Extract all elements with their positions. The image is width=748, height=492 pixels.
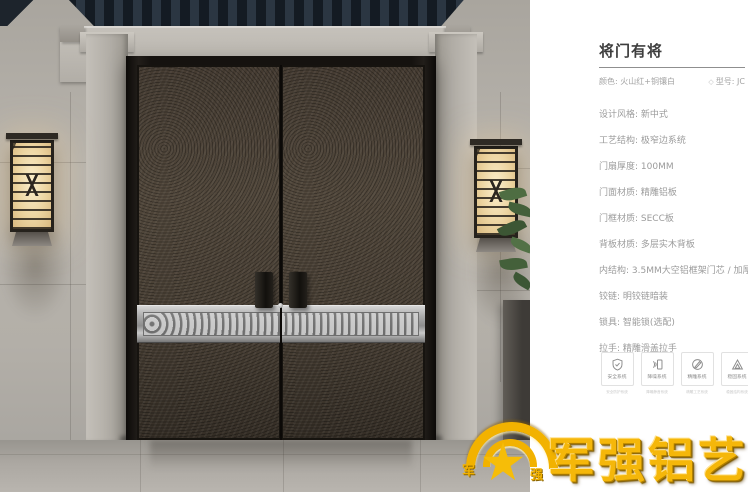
lock-knob xyxy=(278,303,283,308)
emblem-char-right: 强 xyxy=(530,464,543,483)
spec-row-face-material: 门面材质: 精雕铝板 xyxy=(599,185,748,198)
door-scene-render xyxy=(0,0,530,492)
spec-row-frame-material: 门框材质: SECC板 xyxy=(599,211,748,224)
spec-row-back-material: 背板材质: 多层实木背板 xyxy=(599,237,748,250)
feature-box: 稳固系统 xyxy=(721,352,748,386)
feature-icons-row: 安全系统 安全防护系统 降噪系统 降噪静音系统 xyxy=(599,352,748,395)
product-showcase-page: 将门有将 颜色: 火山红+铜镶白 ◇ 型号: JC 设计风格: 新中式 工艺结构… xyxy=(0,0,748,492)
lamp-bracket xyxy=(12,232,52,246)
feature-safety: 安全系统 安全防护系统 xyxy=(599,352,635,395)
spec-row-lock: 锁具: 智能锁(选配) xyxy=(599,315,748,328)
door-center-split xyxy=(280,65,282,440)
feature-structure: 稳固系统 稳固结构系统 xyxy=(719,352,748,395)
model-label-group: ◇ 型号: JC xyxy=(708,76,745,87)
feature-soundproof: 降噪系统 降噪静音系统 xyxy=(639,352,675,395)
door-frame xyxy=(126,56,436,442)
spec-row-design-style: 设计风格: 新中式 xyxy=(599,107,748,120)
wall-sconce-left xyxy=(10,140,54,232)
feature-box: 精雕系统 xyxy=(681,352,714,386)
feature-carving: 精雕系统 精雕工艺系统 xyxy=(679,352,715,395)
wall-joint xyxy=(70,92,71,440)
door-leaf-right xyxy=(281,65,425,440)
spec-row-leaf-thickness: 门扇厚度: 100MM xyxy=(599,159,748,172)
model-diamond-icon: ◇ xyxy=(708,78,713,86)
brand-logo: 军 强 军强铝艺 xyxy=(452,414,748,492)
spec-row-craft-structure: 工艺结构: 极窄边系统 xyxy=(599,133,748,146)
shield-icon xyxy=(611,358,624,371)
soundproof-icon xyxy=(651,358,664,371)
door-leaf-left xyxy=(137,65,281,440)
lamp-chevron-pattern xyxy=(16,174,48,196)
double-door xyxy=(137,65,425,440)
structure-icon xyxy=(731,358,744,371)
carving-icon xyxy=(691,358,704,371)
spec-row-inner-structure: 内结构: 3.5MM大空铝框架门芯 / 加厚加密航空铝板 xyxy=(599,263,748,276)
ceiling-corner xyxy=(0,0,34,26)
color-label: 颜色: 火山红+铜镶白 xyxy=(599,76,675,87)
spec-row-hinge: 铰链: 明铰链暗装 xyxy=(599,289,748,302)
door-handle-left xyxy=(255,272,273,308)
brand-emblem: 军 强 xyxy=(460,416,550,492)
floor-joint xyxy=(140,440,141,492)
emblem-char-left: 军 xyxy=(462,460,475,479)
brand-name: 军强铝艺 xyxy=(548,422,748,491)
feature-box: 降噪系统 xyxy=(641,352,674,386)
model-label: 型号: JC xyxy=(716,76,745,87)
floor-joint xyxy=(420,440,421,492)
lamp-cap xyxy=(470,139,522,145)
door-handle-right xyxy=(289,272,307,308)
product-subtitle-row: 颜色: 火山红+铜镶白 ◇ 型号: JC xyxy=(599,76,745,87)
door-floor-reflection xyxy=(150,440,412,470)
lamp-cap xyxy=(6,133,58,139)
title-divider xyxy=(599,67,745,68)
spec-list: 设计风格: 新中式 工艺结构: 极窄边系统 门扇厚度: 100MM 门面材质: … xyxy=(599,107,748,354)
spec-panel-content: 将门有将 颜色: 火山红+铜镶白 ◇ 型号: JC 设计风格: 新中式 工艺结构… xyxy=(599,40,748,367)
stone-pilaster-left xyxy=(86,34,128,442)
product-title: 将门有将 xyxy=(599,40,748,61)
feature-box: 安全系统 xyxy=(601,352,634,386)
stone-pilaster-right xyxy=(435,34,477,442)
